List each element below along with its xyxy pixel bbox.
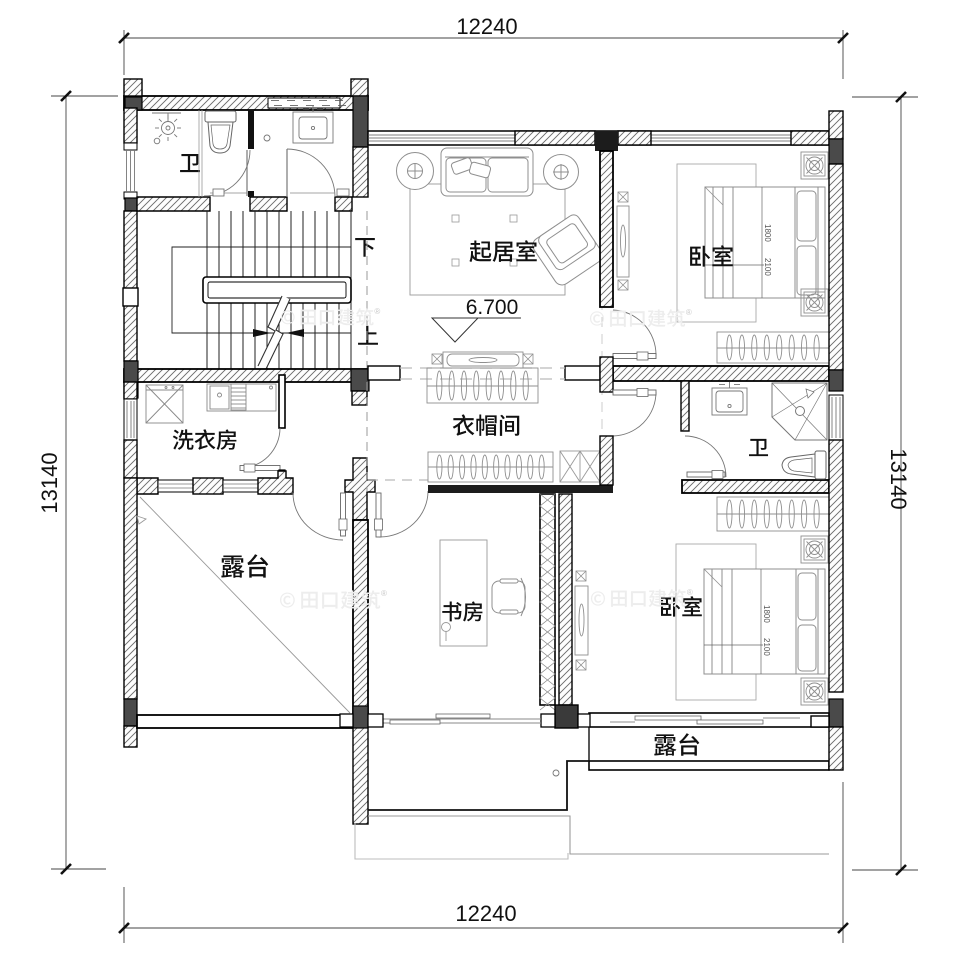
svg-text:13140: 13140 — [37, 452, 62, 513]
svg-text:®: ® — [686, 308, 692, 317]
svg-text:®: ® — [381, 589, 387, 598]
svg-text:2100: 2100 — [762, 638, 771, 656]
svg-text:2100: 2100 — [763, 258, 772, 276]
svg-text:®: ® — [687, 588, 693, 597]
svg-text:®: ® — [374, 307, 380, 316]
svg-text:1800: 1800 — [762, 605, 771, 623]
svg-text:12240: 12240 — [455, 901, 516, 926]
svg-text:1800: 1800 — [763, 224, 772, 242]
svg-text:6.700: 6.700 — [466, 296, 519, 319]
svg-text:12240: 12240 — [456, 14, 517, 39]
svg-text:13140: 13140 — [886, 448, 911, 509]
